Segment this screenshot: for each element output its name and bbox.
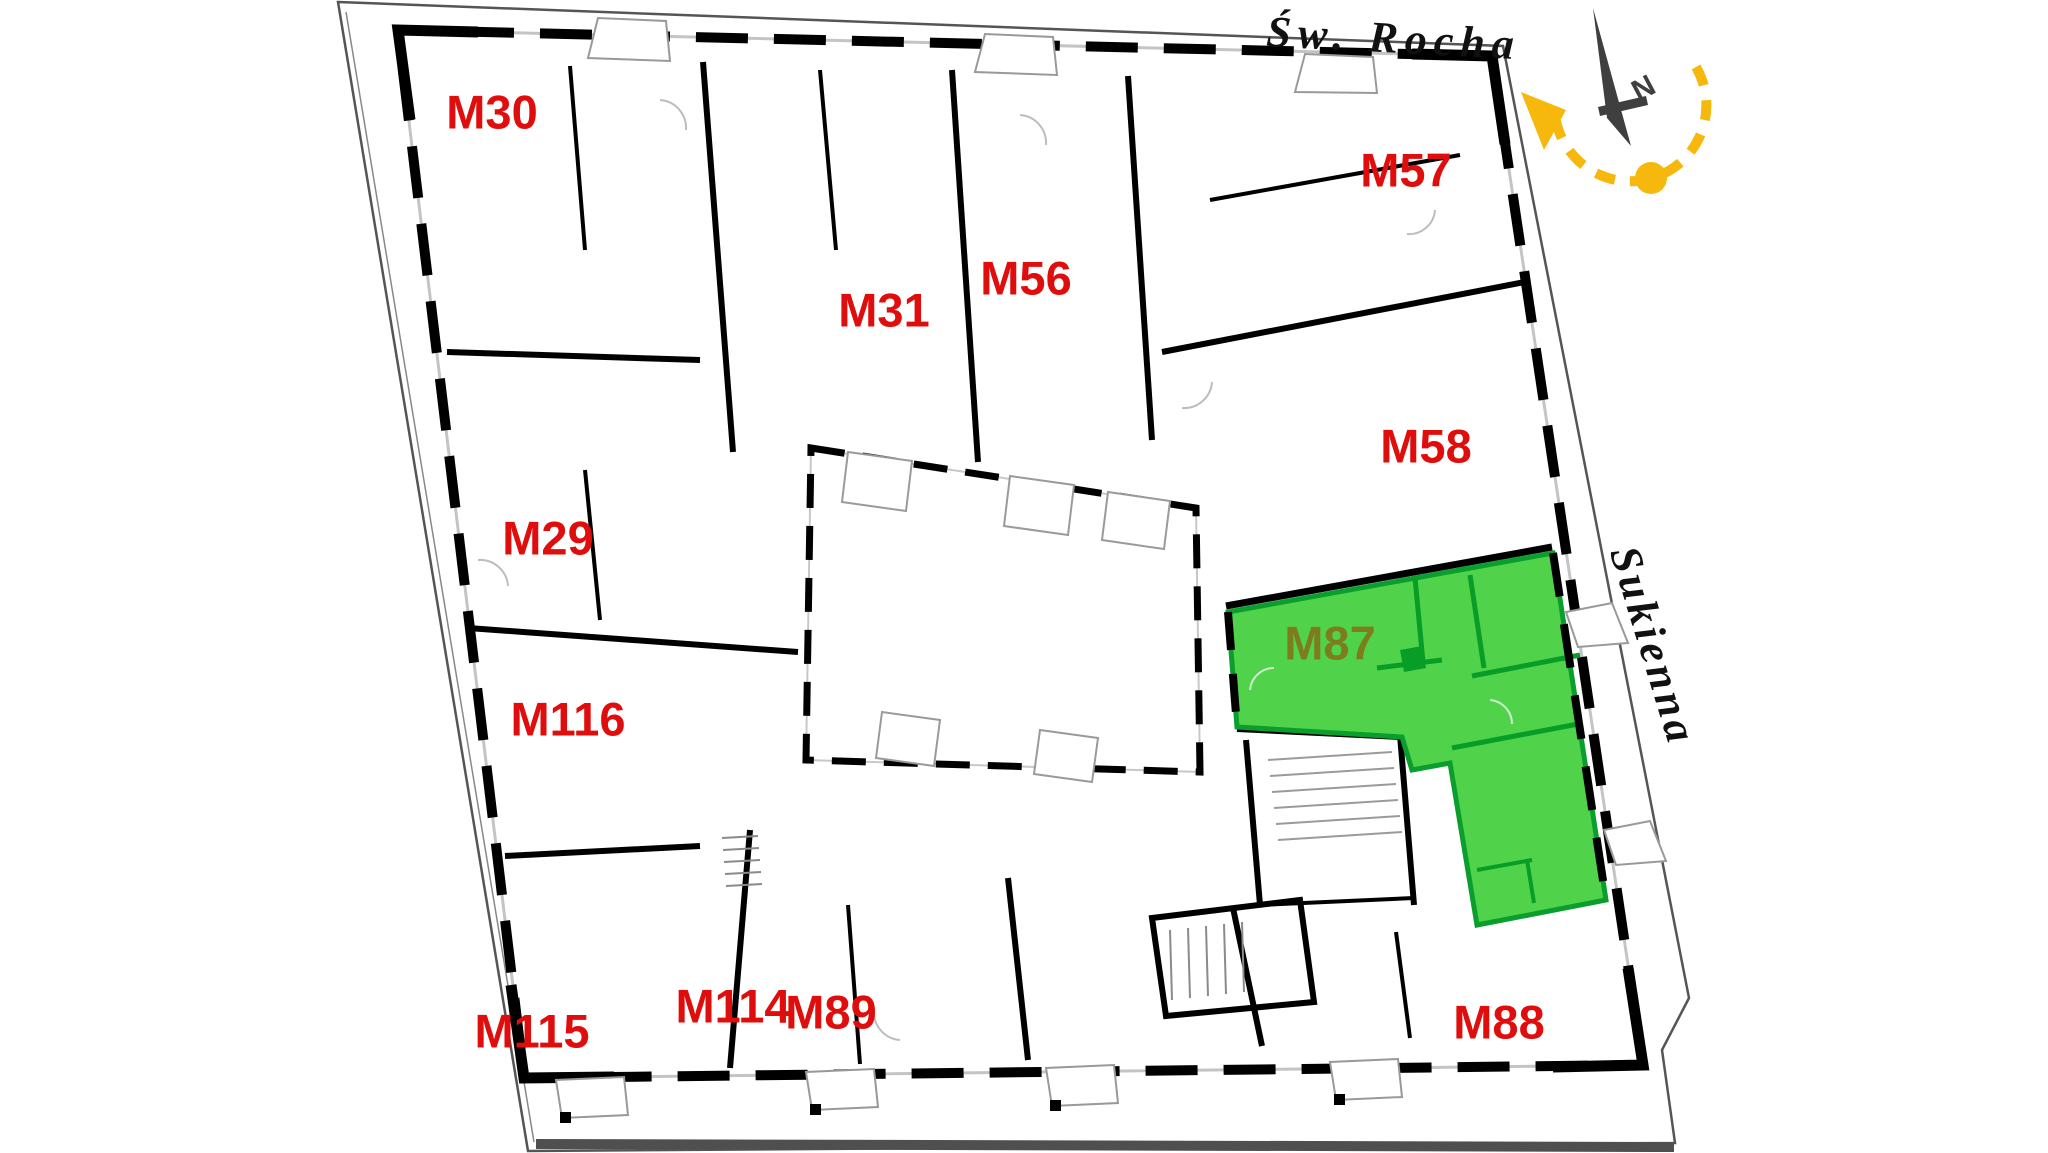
- courtyard-bays: [842, 452, 1170, 782]
- stairwell-left: [722, 836, 762, 886]
- compass: N: [1521, 8, 1706, 194]
- apartment-label-m88[interactable]: M88: [1453, 995, 1544, 1050]
- apartment-label-m87[interactable]: M87: [1284, 616, 1375, 671]
- m87-closet: [1400, 646, 1426, 672]
- apartment-label-m31[interactable]: M31: [838, 283, 929, 338]
- apartment-label-m30[interactable]: M30: [446, 85, 537, 140]
- floor-plan-stage: N M30 M31 M56 M57 M58 M29 M116 M115 M114…: [0, 0, 2048, 1153]
- compass-sun-dot: [1635, 162, 1667, 194]
- street-curb: [536, 1144, 1674, 1147]
- apartment-label-m115[interactable]: M115: [475, 1004, 590, 1059]
- apartment-label-m114[interactable]: M114: [676, 979, 791, 1034]
- interior-walls: [447, 62, 1552, 1068]
- compass-arrowhead: [1521, 92, 1566, 150]
- apartment-label-m58[interactable]: M58: [1380, 419, 1471, 474]
- apartment-label-m116[interactable]: M116: [511, 692, 626, 747]
- apartment-label-m89[interactable]: M89: [785, 985, 876, 1040]
- stairwell-core: [1237, 729, 1414, 905]
- apartment-label-m29[interactable]: M29: [502, 511, 593, 566]
- apartment-label-m56[interactable]: M56: [980, 251, 1071, 306]
- highlighted-apartment-m87[interactable]: [1228, 553, 1606, 925]
- floor-plan-drawing: N: [0, 0, 2048, 1153]
- apartment-label-m57[interactable]: M57: [1360, 143, 1451, 198]
- north-needle-icon: [1593, 8, 1631, 146]
